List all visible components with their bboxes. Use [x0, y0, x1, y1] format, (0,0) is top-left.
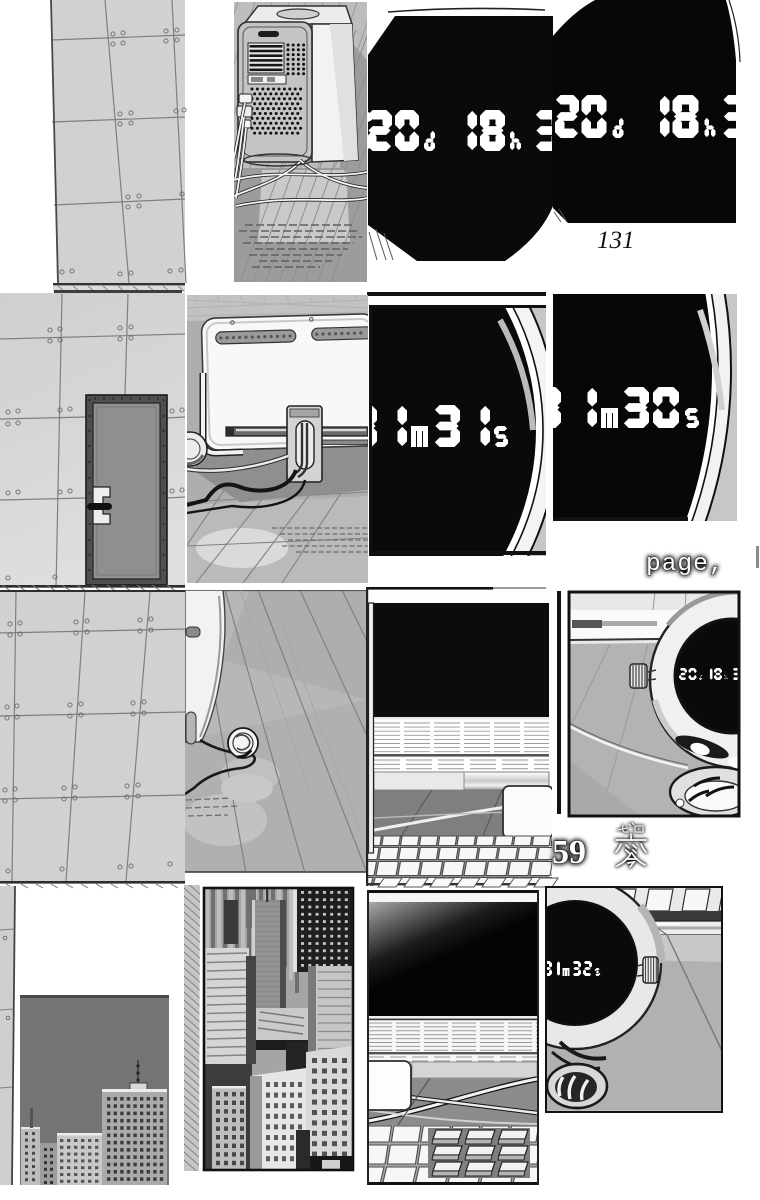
svg-text:page,: page, — [646, 551, 725, 578]
svg-text:59: 59 — [552, 834, 586, 871]
svg-text:131: 131 — [597, 227, 635, 254]
